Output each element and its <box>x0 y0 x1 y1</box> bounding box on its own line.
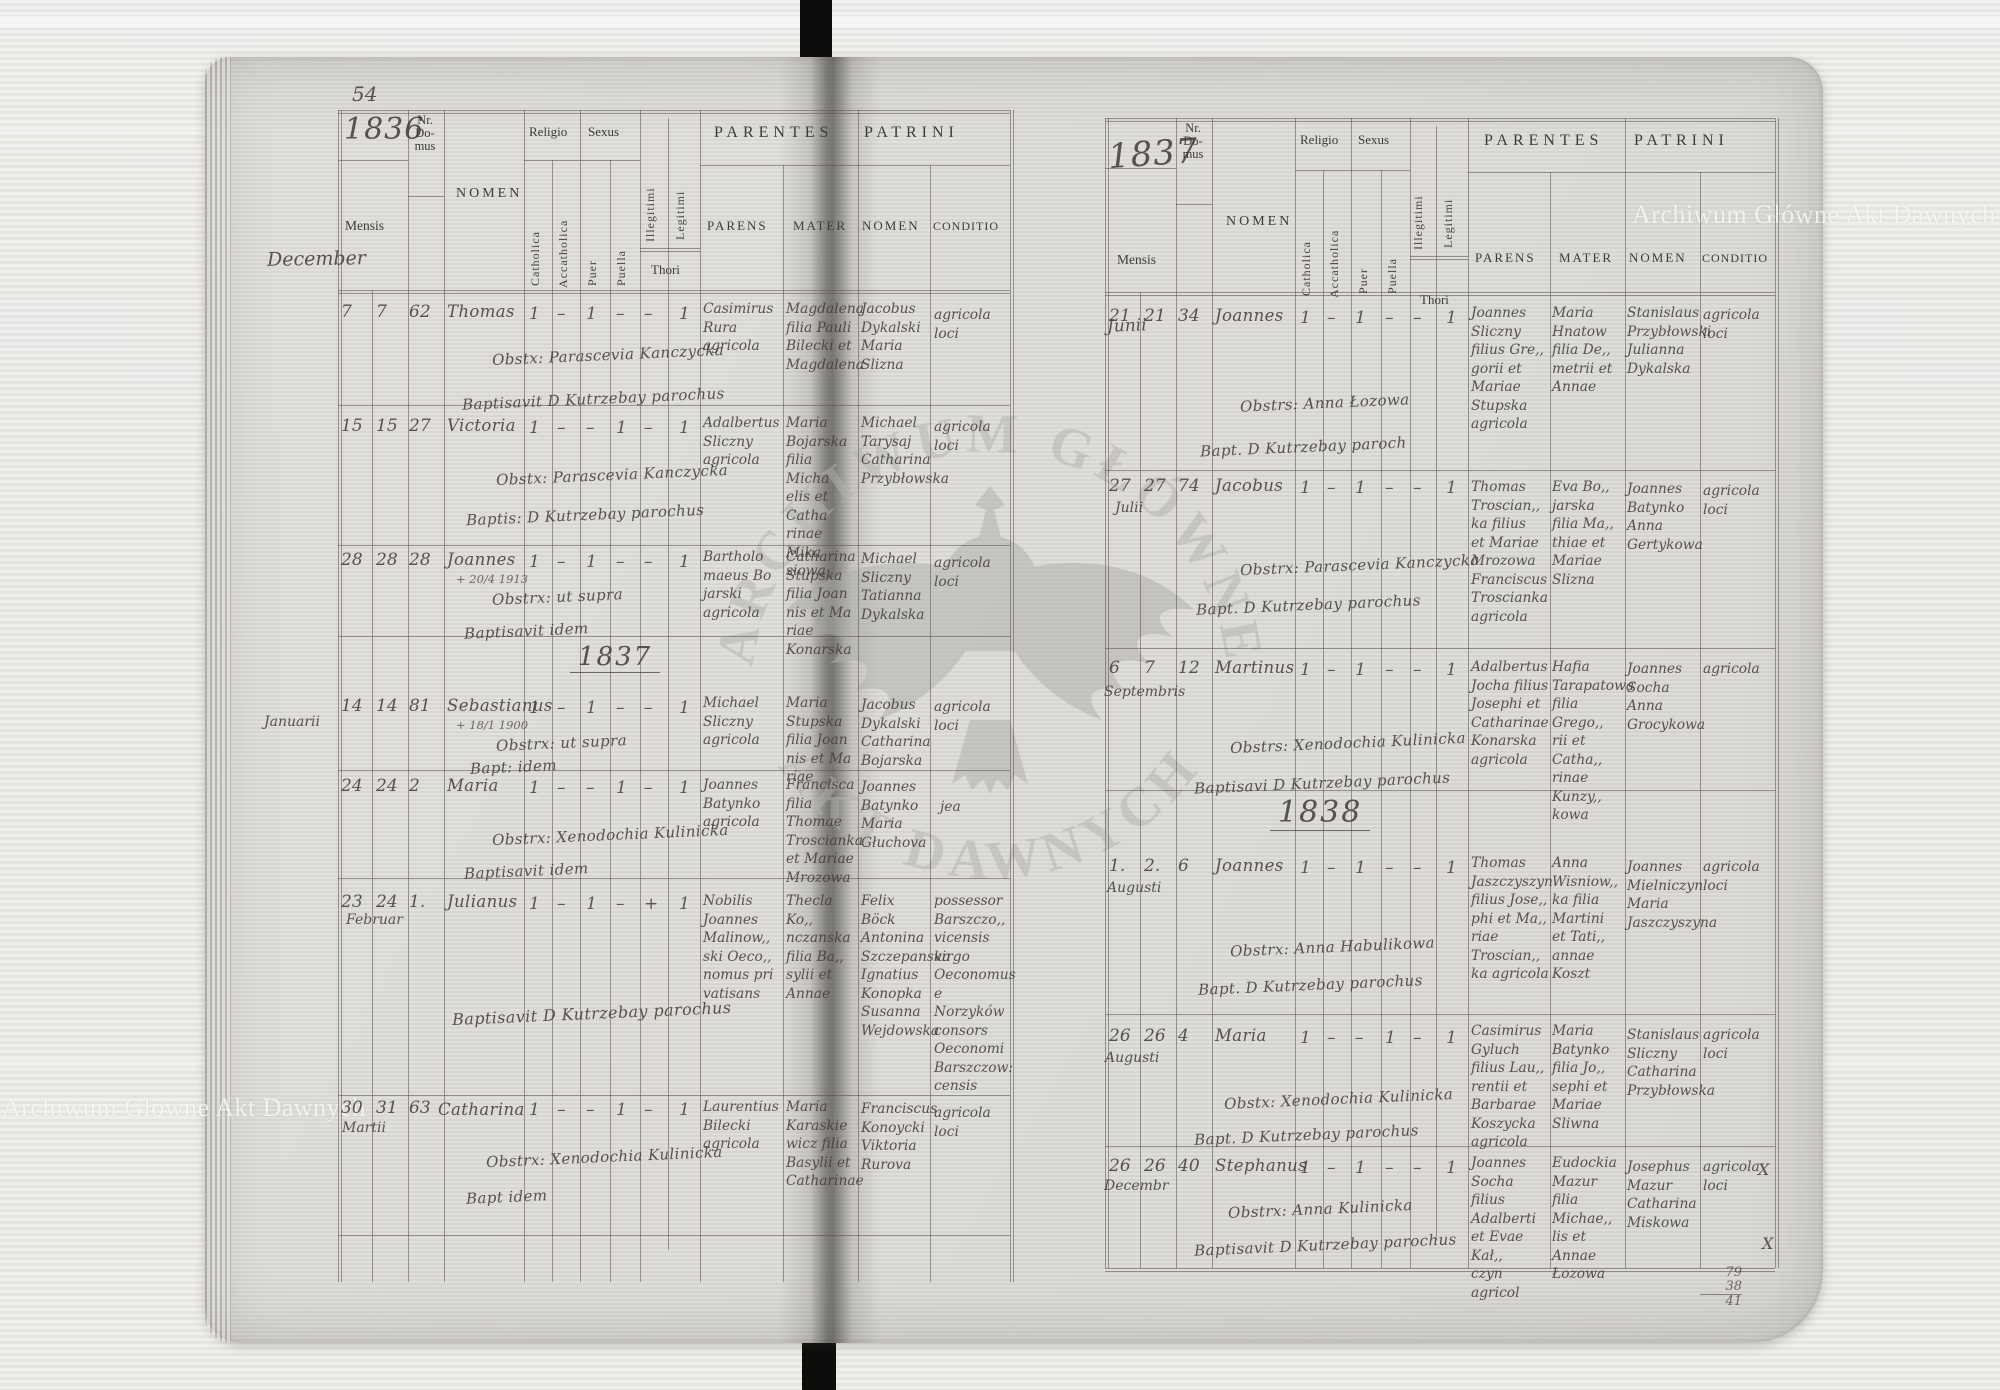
month-entry: Augusti <box>1105 1050 1159 1066</box>
child-name: Jacobus <box>1215 476 1283 495</box>
column-label-illegitimi: Illegitimi <box>643 126 658 242</box>
mark-puella: – <box>1385 660 1394 680</box>
mark-legitimi: 1 <box>1446 308 1457 328</box>
grid-line <box>338 1235 1010 1236</box>
father-entry: Thomas Jaszczyszyn filius Jose,, phi et … <box>1471 854 1551 984</box>
grid-line <box>1468 172 1775 173</box>
mother-entry: Francisca filia Thomae Troscianka et Mar… <box>786 776 860 887</box>
grid-line <box>783 165 784 1282</box>
mark-puer: – <box>586 418 595 438</box>
birth-day: 24 <box>341 776 363 796</box>
father-entry: Laurentius Bilecki agricola <box>703 1098 783 1154</box>
column-label-legitimi: Legitimi <box>673 128 688 240</box>
mark-puella: – <box>616 894 625 914</box>
grid-line <box>1176 204 1212 205</box>
group-label-sexus: Sexus <box>588 124 619 140</box>
birth-day: 26 <box>1109 1026 1131 1046</box>
mark-legitimi: 1 <box>679 304 690 324</box>
mark-legitimi: 1 <box>679 698 690 718</box>
grid-line <box>1013 110 1014 1282</box>
godparents-entry: Joannes Batynko Maria Głuchova <box>861 778 931 852</box>
mark-acatholica: – <box>557 552 566 572</box>
mark-acatholica: – <box>557 698 566 718</box>
baptizer-note: Bapt: idem <box>470 756 558 778</box>
column-label-catholica: Catholica <box>1299 176 1314 296</box>
grid-line <box>408 196 444 197</box>
baptism-day: 28 <box>376 550 398 570</box>
column-label-mensis: Mensis <box>345 218 384 234</box>
house-number: 2 <box>409 776 420 796</box>
mother-entry: Maria Hnatow filia De,, metrii et Annae <box>1552 304 1626 397</box>
month-entry: Septembris <box>1104 684 1185 700</box>
godparents-entry: Jacobus Dykalski Catharina Bojarska <box>861 696 931 770</box>
godparents-condition: agricola loci <box>934 418 1012 455</box>
grid-line <box>1105 470 1775 471</box>
grid-line <box>338 293 1010 294</box>
group-label-patrini: PATRINI <box>1634 132 1729 150</box>
grid-line <box>1105 1268 1775 1269</box>
group-label-religio: Religio <box>529 124 567 140</box>
grid-line <box>1105 648 1775 649</box>
mother-entry: Eva Bo,, jarska filia Ma,, thiae et Mari… <box>1552 478 1626 589</box>
mark-puella: – <box>1385 858 1394 878</box>
column-label-mater: MATER <box>1559 250 1613 266</box>
father-entry: Joannes Batynko agricola <box>703 776 783 832</box>
mark-puer: – <box>1355 1028 1364 1048</box>
mother-entry: Maria Stupska filia Joan nis et Ma riae <box>786 694 860 787</box>
godparents-condition: agricola <box>1703 660 1777 679</box>
grid-line <box>338 770 1010 771</box>
group-label-patrini: PATRINI <box>864 124 959 142</box>
house-number: 34 <box>1178 306 1200 326</box>
child-name: Thomas <box>447 302 515 321</box>
house-number: 1. <box>409 892 425 912</box>
father-entry: Joannes Sliczny filius Gre,, gorii et Ma… <box>1471 304 1551 434</box>
father-entry: Joannes Socha filius Adalberti et Evae K… <box>1471 1154 1551 1302</box>
baptism-day: 26 <box>1144 1026 1166 1046</box>
godparents-entry: Josephus Mazur Catharina Miskowa <box>1627 1158 1702 1232</box>
grid-line <box>1410 259 1468 260</box>
godparents-condition: agricola loci <box>1703 858 1777 895</box>
godparents-entry: Stanislaus Przybłowski Julianna Dykalska <box>1627 304 1702 378</box>
grid-line <box>668 118 669 1250</box>
child-name: Maria <box>1215 1026 1267 1045</box>
sum-line: 79 <box>1700 1266 1742 1280</box>
column-label-mensis: Mensis <box>1117 252 1156 268</box>
mother-entry: Anna Wisniow,, ka filia Martini et Tati,… <box>1552 854 1626 984</box>
column-label-puella: Puella <box>614 200 629 286</box>
godparents-entry: Joannes Mielniczyn Maria Jaszczyszyna <box>1627 858 1702 932</box>
mark-catholica: 1 <box>529 778 540 798</box>
mark-illegitimi: – <box>644 418 653 438</box>
mother-entry: Hafia Tarapatowa filia Grego,, rii et Ca… <box>1552 658 1626 825</box>
mark-catholica: 1 <box>1300 1028 1311 1048</box>
column-label-puella: Puella <box>1385 208 1400 294</box>
birth-day: 1. <box>1109 856 1125 876</box>
mark-illegitimi: – <box>644 1100 653 1120</box>
mark-puella: – <box>616 552 625 572</box>
grid-line <box>640 110 641 1282</box>
father-entry: Thomas Troscian,, ka filius et Mariae Mr… <box>1471 478 1551 626</box>
godparents-condition: agricola loci <box>1703 1026 1777 1063</box>
house-number: 40 <box>1178 1156 1200 1176</box>
mark-legitimi: 1 <box>679 1100 690 1120</box>
column-label-puer: Puer <box>585 204 600 286</box>
month-entry: Martii <box>342 1120 386 1136</box>
child-name: Stephanus <box>1215 1156 1307 1175</box>
mark-puella: – <box>1385 308 1394 328</box>
column-label-conditio: CONDITIO <box>933 219 999 234</box>
column-label-catholica: Catholica <box>528 166 543 286</box>
child-name: Joannes <box>1215 856 1284 875</box>
baptism-day: 24 <box>376 776 398 796</box>
column-label-parens: PARENS <box>1475 250 1536 266</box>
mark-catholica: 1 <box>529 698 540 718</box>
baptism-day: 2. <box>1144 856 1160 876</box>
column-label-nomen: NOMEN <box>456 186 522 202</box>
mark-catholica: 1 <box>529 418 540 438</box>
grid-line <box>1775 118 1776 1268</box>
mark-puella: – <box>1385 1158 1394 1178</box>
mark-catholica: 1 <box>529 552 540 572</box>
margin-x-mark: X <box>1762 1234 1773 1253</box>
birth-day: 14 <box>341 696 363 716</box>
baptism-day: 7 <box>376 302 387 322</box>
mark-legitimi: 1 <box>1446 1158 1457 1178</box>
margin-sum-notes: 79 38 41 <box>1700 1266 1742 1309</box>
mark-catholica: 1 <box>1300 660 1311 680</box>
year-divider: 1837 <box>570 642 660 673</box>
grid-line <box>338 110 1010 111</box>
mark-puer: 1 <box>1355 308 1366 328</box>
mother-entry: Catharina Stupska filia Joan nis et Ma r… <box>786 548 860 659</box>
page-number: 54 <box>352 82 377 106</box>
mark-puella: 1 <box>616 778 627 798</box>
mark-catholica: 1 <box>1300 1158 1311 1178</box>
child-name: Joannes <box>447 550 516 569</box>
grid-line <box>1105 1271 1775 1272</box>
column-label-patrini-nomen: NOMEN <box>862 218 920 234</box>
death-annotation: + 18/1 1900 <box>456 718 528 732</box>
book-spine-bottom <box>802 1338 836 1390</box>
father-entry: Adalbertus Sliczny agricola <box>703 414 783 470</box>
godparents-entry: Franciscus Konoycki Viktoria Rurova <box>861 1100 931 1174</box>
birth-day: 15 <box>341 416 363 436</box>
mark-legitimi: 1 <box>1446 660 1457 680</box>
mark-legitimi: 1 <box>679 894 690 914</box>
baptism-day: 7 <box>1144 658 1155 678</box>
baptism-day: 26 <box>1144 1156 1166 1176</box>
grid-line <box>338 160 408 161</box>
mark-puer: 1 <box>1355 858 1366 878</box>
column-label-illegitimi: Illegitimi <box>1411 134 1426 250</box>
godparents-condition: jea <box>940 798 1018 817</box>
baptism-day: 15 <box>376 416 398 436</box>
grid-line <box>338 878 1010 879</box>
house-number: 28 <box>409 550 431 570</box>
column-label-accatholica: Accatholica <box>1327 172 1342 298</box>
column-label-puer: Puer <box>1356 212 1371 294</box>
mark-puella: 1 <box>1385 1028 1396 1048</box>
godparents-entry: Michael Sliczny Tatianna Dykalska <box>861 550 931 624</box>
mark-legitimi: 1 <box>679 778 690 798</box>
godparents-entry: Joannes Batynko Anna Gertykowa <box>1627 480 1702 554</box>
column-label-patrini-nomen: NOMEN <box>1629 250 1687 266</box>
mark-puer: 1 <box>586 304 597 324</box>
baptism-day: 31 <box>376 1098 398 1118</box>
group-label-parentes: PARENTES <box>1484 132 1603 150</box>
house-number: 62 <box>409 302 431 322</box>
mark-acatholica: – <box>1327 308 1336 328</box>
grid-line <box>1295 170 1410 171</box>
column-label-mater: MATER <box>793 218 847 234</box>
birth-day: 6 <box>1109 658 1120 678</box>
godparents-condition: agricola loci <box>934 306 1012 343</box>
mark-illegitimi: – <box>644 304 653 324</box>
mark-acatholica: – <box>1327 478 1336 498</box>
column-label-nr-domus: Nr. Do- mus <box>406 114 444 153</box>
month-entry: Julii <box>1115 500 1143 516</box>
mark-illegitimi: – <box>1413 858 1422 878</box>
month-heading: December <box>267 247 366 271</box>
godparents-entry: Michael Tarysaj Catharina Przybłowska <box>861 414 931 488</box>
mark-illegitimi: – <box>1413 660 1422 680</box>
baptism-day: 21 <box>1144 306 1166 326</box>
mark-puella: – <box>616 698 625 718</box>
child-name: Julianus <box>447 892 518 911</box>
grid-line <box>338 110 339 1282</box>
mark-puer: 1 <box>586 698 597 718</box>
mother-entry: Thecla Ko,, nczanska filia Ba,, sylii et… <box>786 892 860 1003</box>
mark-puer: 1 <box>1355 1158 1366 1178</box>
birth-day: 27 <box>1109 476 1131 496</box>
scanned-register-spread: ARCHIWUM GŁÓWNE AKT DAWNYCH Archiwum Głó… <box>0 0 2000 1390</box>
margin-x-mark: X <box>1758 1160 1769 1179</box>
mark-acatholica: – <box>1327 660 1336 680</box>
grid-line <box>1468 118 1469 1268</box>
grid-line <box>1105 118 1775 119</box>
group-label-parentes: PARENTES <box>714 124 833 142</box>
mother-entry: Magdalena filia Pauli Bilecki et Magdale… <box>786 300 860 374</box>
birth-day: 21 <box>1109 306 1131 326</box>
mark-puella: 1 <box>616 418 627 438</box>
grid-line <box>338 545 1010 546</box>
godparents-condition: agricola loci <box>934 1104 1012 1141</box>
mark-acatholica: – <box>557 304 566 324</box>
sum-line: 41 <box>1700 1295 1742 1309</box>
father-entry: Nobilis Joannes Malinow,, ski Oeco,, nom… <box>703 892 783 1003</box>
scan-streak <box>0 16 2000 28</box>
mark-legitimi: 1 <box>679 552 690 572</box>
column-label-accatholica: Accatholica <box>556 162 571 288</box>
column-label-nomen: NOMEN <box>1226 214 1292 230</box>
grid-line <box>1212 118 1213 1268</box>
month-entry: Augusti <box>1107 880 1161 896</box>
baptism-day: 24 <box>376 892 398 912</box>
month-entry: Februar <box>346 912 403 928</box>
mark-puella: – <box>1385 478 1394 498</box>
birth-day: 7 <box>341 302 352 322</box>
grid-line <box>580 110 581 1282</box>
mark-acatholica: – <box>1327 1028 1336 1048</box>
house-number: 81 <box>409 696 431 716</box>
grid-line <box>1778 118 1779 1268</box>
grid-line <box>700 165 1010 166</box>
grid-line <box>640 248 700 249</box>
mark-puella: 1 <box>616 1100 627 1120</box>
mark-acatholica: – <box>557 894 566 914</box>
baptism-day: 27 <box>1144 476 1166 496</box>
godparents-entry: Jacobus Dykalski Maria Slizna <box>861 300 931 374</box>
mark-illegitimi: – <box>644 778 653 798</box>
father-entry: Michael Sliczny agricola <box>703 694 783 750</box>
mark-illegitimi: – <box>1413 308 1422 328</box>
father-entry: Adalbertus Jocha filius Josephi et Catha… <box>1471 658 1551 769</box>
mark-catholica: 1 <box>529 304 540 324</box>
archive-watermark-left: Archiwum Główne Akt Dawnych <box>2 1093 366 1123</box>
child-name: Maria <box>447 776 499 795</box>
mark-puer: – <box>586 778 595 798</box>
column-label-conditio: CONDITIO <box>1702 251 1768 266</box>
child-name: Catharina <box>438 1100 525 1119</box>
mark-legitimi: 1 <box>1446 1028 1457 1048</box>
birth-day: 28 <box>341 550 363 570</box>
mark-illegitimi: + <box>644 894 658 914</box>
godparents-condition: agricola loci <box>1703 482 1777 519</box>
mark-acatholica: – <box>1327 1158 1336 1178</box>
mark-catholica: 1 <box>1300 308 1311 328</box>
mark-catholica: 1 <box>529 894 540 914</box>
mark-puella: – <box>616 304 625 324</box>
mark-acatholica: – <box>557 1100 566 1120</box>
mark-illegitimi: – <box>1413 1158 1422 1178</box>
child-name: Joannes <box>1215 306 1284 325</box>
grid-line <box>524 160 640 161</box>
mark-catholica: 1 <box>1300 478 1311 498</box>
godparents-entry: Joannes Socha Anna Grocykowa <box>1627 660 1702 734</box>
house-number: 63 <box>409 1098 431 1118</box>
mark-puer: 1 <box>586 894 597 914</box>
mark-legitimi: 1 <box>679 418 690 438</box>
house-number: 6 <box>1178 856 1189 876</box>
book-spine-top <box>800 0 832 57</box>
mark-illegitimi: – <box>1413 478 1422 498</box>
birth-day: 30 <box>341 1098 363 1118</box>
column-label-thori: Thori <box>651 262 680 278</box>
sum-line: 38 <box>1700 1280 1742 1295</box>
month-entry: Decembr <box>1104 1178 1169 1194</box>
group-label-religio: Religio <box>1300 132 1338 148</box>
grid-line <box>338 1095 1010 1096</box>
godparents-condition: possessor Barszczo,, vicensis virgo Oeco… <box>934 892 1012 1096</box>
mark-acatholica: – <box>557 418 566 438</box>
mark-acatholica: – <box>1327 858 1336 878</box>
mark-legitimi: 1 <box>1446 858 1457 878</box>
column-label-thori: Thori <box>1420 292 1449 308</box>
house-number: 27 <box>409 416 431 436</box>
grid-line <box>1105 1014 1775 1015</box>
baptism-day: 14 <box>376 696 398 716</box>
mark-catholica: 1 <box>529 1100 540 1120</box>
birth-day: 23 <box>341 892 363 912</box>
mark-illegitimi: – <box>1413 1028 1422 1048</box>
child-name: Victoria <box>447 416 516 435</box>
mark-legitimi: 1 <box>1446 478 1457 498</box>
grid-line <box>338 636 1010 637</box>
grid-line <box>338 405 1010 406</box>
grid-line <box>700 110 701 1282</box>
house-number: 12 <box>1178 658 1200 678</box>
godparents-entry: Stanislaus Sliczny Catharina Przybłowska <box>1627 1026 1702 1100</box>
father-entry: Casimirus Gyluch filius Lau,, rentii et … <box>1471 1022 1551 1152</box>
mark-illegitimi: – <box>644 552 653 572</box>
house-number: 4 <box>1178 1026 1189 1046</box>
godparents-condition: agricola loci <box>1703 306 1777 343</box>
archive-watermark-right: Archiwum Główne Akt Dawnych <box>1632 200 1996 230</box>
year-divider: 1838 <box>1270 795 1370 831</box>
column-label-nr-domus: Nr. Do- mus <box>1174 122 1212 161</box>
father-entry: Bartholo maeus Bo jarski agricola <box>703 548 783 622</box>
godparents-condition: agricola loci <box>934 554 1012 591</box>
mother-entry: Maria Batynko filia Jo,, sephi et Mariae… <box>1552 1022 1626 1133</box>
baptizer-note: Bapt idem <box>466 1186 548 1208</box>
godparents-entry: Felix Böck Antonina Szczepanska Ignatius… <box>861 892 931 1040</box>
mark-acatholica: – <box>557 778 566 798</box>
group-label-sexus: Sexus <box>1358 132 1389 148</box>
grid-line <box>640 251 700 252</box>
grid-line <box>610 160 611 1282</box>
mark-catholica: 1 <box>1300 858 1311 878</box>
birth-day: 26 <box>1109 1156 1131 1176</box>
death-annotation: + 20/4 1913 <box>456 572 528 586</box>
mark-puer: 1 <box>1355 660 1366 680</box>
godparents-condition: agricola loci <box>934 698 1012 735</box>
mark-puer: 1 <box>1355 478 1366 498</box>
mother-entry: Maria Karaskie wicz filia Basylii et Cat… <box>786 1098 860 1191</box>
mark-illegitimi: – <box>644 698 653 718</box>
column-label-parens: PARENS <box>707 218 768 234</box>
grid-line <box>338 290 1010 291</box>
grid-line <box>1140 292 1141 1268</box>
house-number: 74 <box>1178 476 1200 496</box>
month-entry: Januarii <box>264 714 320 730</box>
mark-puer: – <box>586 1100 595 1120</box>
grid-line <box>1410 256 1468 257</box>
mark-puer: 1 <box>586 552 597 572</box>
mother-entry: Eudockia Mazur filia Michae,, lis et Ann… <box>1552 1154 1626 1284</box>
column-label-legitimi: Legitimi <box>1441 136 1456 248</box>
grid-line <box>552 160 553 1282</box>
child-name: Martinus <box>1215 658 1294 677</box>
father-entry: Casimirus Rura agricola <box>703 300 783 356</box>
